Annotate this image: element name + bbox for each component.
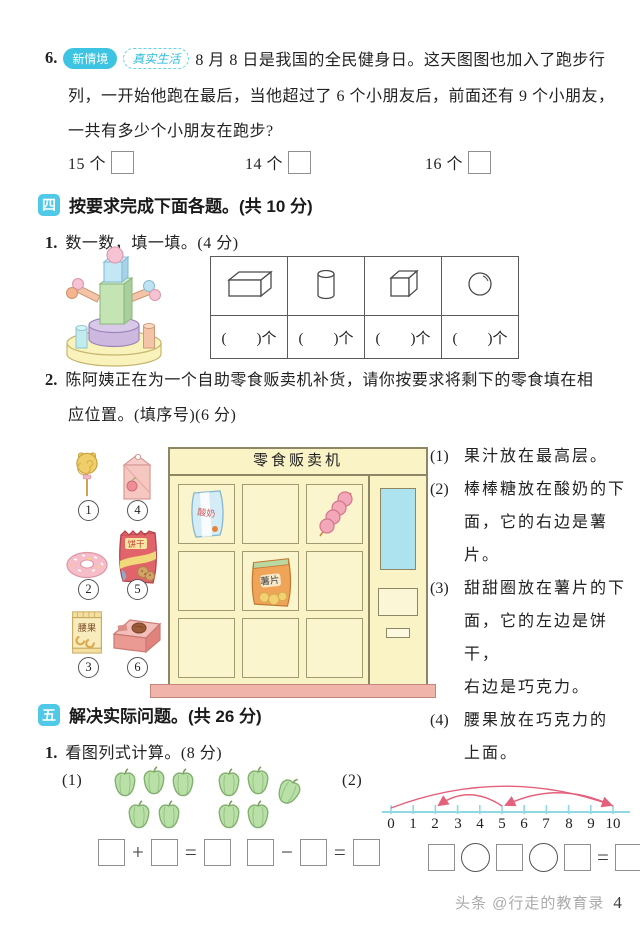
page-number: 4 <box>613 893 622 913</box>
pepper-icon <box>271 772 307 810</box>
machine-base <box>150 684 436 698</box>
machine-cell-r2c2-chips: 薯片 <box>242 551 299 611</box>
cuboid-icon <box>219 264 279 304</box>
number-line: 0 1 2 3 4 5 6 7 8 9 10 <box>380 768 632 840</box>
count-answer-cell[interactable]: ( )个 <box>365 316 442 359</box>
worksheet-page: 6. 新情境 真实生活 8 月 8 日是我国的全民健身日。这天图图也加入了跑步行… <box>0 0 640 931</box>
equation-box[interactable] <box>615 844 640 871</box>
yogurt-icon: 酸奶 <box>185 488 229 540</box>
minus-operator: − <box>281 840 293 865</box>
item-number-donut: 2 <box>78 579 99 600</box>
question-number: 6. <box>45 48 57 68</box>
machine-cell-r1c3-candied-haws <box>306 484 363 544</box>
shape-cell-cuboid <box>211 257 288 316</box>
equation-box[interactable] <box>151 839 178 866</box>
answer-checkbox[interactable] <box>111 151 134 174</box>
pepper-group-left <box>112 766 212 832</box>
machine-display <box>380 488 416 570</box>
question-number: 1. <box>45 743 57 763</box>
operator-circle[interactable] <box>461 843 490 872</box>
clue-item: (4) 腰果放在巧克力的 上面。 <box>430 704 635 770</box>
shape-toy-illustration <box>52 246 182 368</box>
clue-number: (3) <box>430 572 464 704</box>
equals-operator: = <box>185 840 197 865</box>
s5-q1-title-row: 1. 看图列式计算。(8 分) <box>45 739 222 763</box>
answer-option: 15 个 <box>68 150 134 174</box>
watermark-text: 头条 @行走的教育录 <box>455 892 604 913</box>
tick-label: 2 <box>424 816 446 833</box>
s4-q2-text-line1: 2. 陈阿姨正在为一个自助零食贩卖机补货，请你按要求将剩下的零食填在相 <box>45 366 593 390</box>
section-badge: 四 <box>38 194 60 216</box>
cashew-bag-label: 腰果 <box>78 623 96 633</box>
clue-number: (1) <box>430 440 464 473</box>
question-number: 2. <box>45 370 57 390</box>
question-6-first-line: 6. 新情境 真实生活 8 月 8 日是我国的全民健身日。这天图图也加入了跑步行 <box>45 46 605 70</box>
machine-cell-r2c3-empty[interactable] <box>306 551 363 611</box>
item-number-cookie: 5 <box>127 579 148 600</box>
pepper-icon <box>245 766 271 796</box>
chocolate-box-icon <box>108 612 166 656</box>
part-2-label: (2) <box>342 772 362 790</box>
machine-cell-r1c1-yogurt: 酸奶 <box>178 484 235 544</box>
equation-box[interactable] <box>564 844 591 871</box>
cookie-bag-icon: 饼干 <box>115 525 159 587</box>
cube-icon <box>373 264 433 304</box>
vending-machine-title: 零食贩卖机 <box>170 449 426 476</box>
chips-icon: 薯片 <box>248 554 294 608</box>
clue-line: 上面。 <box>464 737 608 770</box>
number-line-equation: = <box>428 843 640 872</box>
clue-line: 腰果放在巧克力的 <box>464 704 608 737</box>
donut-icon <box>64 547 110 581</box>
shape-cell-cube <box>365 257 442 316</box>
tick-label: 3 <box>447 816 469 833</box>
tick-label: 1 <box>402 816 424 833</box>
answer-checkbox[interactable] <box>288 151 311 174</box>
question-text-line: 陈阿姨正在为一个自助零食贩卖机补货，请你按要求将剩下的零食填在相 <box>65 366 593 390</box>
tick-label: 7 <box>535 816 557 833</box>
part-1-label: (1) <box>62 772 82 790</box>
tick-label: 0 <box>380 816 402 833</box>
equation-box[interactable] <box>496 844 523 871</box>
pepper-icon <box>141 766 167 796</box>
clue-line: 甜甜圈放在薯片的下 <box>464 572 635 605</box>
cylinder-icon <box>296 264 356 304</box>
machine-side-panel <box>368 476 426 684</box>
count-answer-cell[interactable]: ( )个 <box>288 316 365 359</box>
yogurt-label: 酸奶 <box>196 506 215 519</box>
equation-box[interactable] <box>300 839 327 866</box>
sphere-icon <box>450 264 510 304</box>
option-label: 14 个 <box>245 156 283 173</box>
juice-carton-icon <box>119 448 155 502</box>
pepper-icon <box>156 800 182 830</box>
item-number-lollipop: 1 <box>78 500 99 521</box>
machine-pickup-box <box>378 588 418 616</box>
badge-new-context: 新情境 <box>63 48 117 69</box>
count-answer-cell[interactable]: ( )个 <box>442 316 519 359</box>
cashew-bag-icon: 腰果 <box>68 608 106 655</box>
tick-label: 10 <box>602 816 624 833</box>
question-title: 看图列式计算。(8 分) <box>65 739 222 763</box>
machine-cell-r3c2-empty[interactable] <box>242 618 299 678</box>
badge-real-life: 真实生活 <box>123 48 189 69</box>
pepper-icon <box>216 800 242 830</box>
clue-line: 面，它的左边是饼干， <box>464 605 635 671</box>
question-text-line: 8 月 8 日是我国的全民健身日。这天图图也加入了跑步行 <box>195 46 605 70</box>
clue-item: (3) 甜甜圈放在薯片的下 面，它的左边是饼干， 右边是巧克力。 <box>430 572 635 704</box>
clue-item: (2) 棒棒糖放在酸奶的下 面，它的右边是薯片。 <box>430 473 635 572</box>
tick-label: 9 <box>580 816 602 833</box>
answer-option: 16 个 <box>425 150 491 174</box>
count-answer-cell[interactable]: ( )个 <box>211 316 288 359</box>
operator-circle[interactable] <box>529 843 558 872</box>
equation-box[interactable] <box>428 844 455 871</box>
equation-box[interactable] <box>98 839 125 866</box>
vending-machine: 零食贩卖机 酸奶 <box>168 447 428 688</box>
answer-option: 14 个 <box>245 150 311 174</box>
pepper-icon <box>126 800 152 830</box>
machine-grid: 酸奶 <box>170 476 368 684</box>
cookie-bag-label: 饼干 <box>127 539 145 549</box>
arc-5-to-2 <box>439 795 502 806</box>
machine-cell-r1c2-empty[interactable] <box>242 484 299 544</box>
pepper-icon <box>216 768 242 798</box>
equation-box[interactable] <box>353 839 380 866</box>
clue-line: 棒棒糖放在酸奶的下 <box>464 473 635 506</box>
pepper-icon <box>170 768 196 798</box>
machine-cell-r2c1-empty[interactable] <box>178 551 235 611</box>
clue-number: (4) <box>430 704 464 770</box>
clue-number: (2) <box>430 473 464 572</box>
shapes-count-table: ( )个 ( )个 ( )个 ( )个 <box>210 256 519 359</box>
tick-label: 6 <box>513 816 535 833</box>
pepper-icon <box>245 800 271 830</box>
option-label: 16 个 <box>425 156 463 173</box>
option-label: 15 个 <box>68 156 106 173</box>
answer-checkbox[interactable] <box>468 151 491 174</box>
item-number-chocolate: 6 <box>127 657 148 678</box>
clue-line: 右边是巧克力。 <box>464 671 635 704</box>
number-line-figure <box>380 768 632 818</box>
shape-cell-sphere <box>442 257 519 316</box>
machine-cell-r3c3-empty[interactable] <box>306 618 363 678</box>
s4-q2-text-line2: 应位置。(填序号)(6 分) <box>68 401 236 425</box>
section-badge: 五 <box>38 704 60 726</box>
chips-label: 薯片 <box>259 574 279 588</box>
tick-label: 8 <box>558 816 580 833</box>
clue-item: (1) 果汁放在最高层。 <box>430 440 635 473</box>
section-5-header: 五 解决实际问题。(共 26 分) <box>38 702 262 727</box>
clue-line: 面，它的右边是薯片。 <box>464 506 635 572</box>
item-number-cashew: 3 <box>78 657 99 678</box>
addition-equation: + = <box>98 839 231 866</box>
arc-10-to-5 <box>506 793 613 806</box>
pepper-icon <box>112 768 138 798</box>
pepper-group-right <box>216 766 316 832</box>
equation-box[interactable] <box>247 839 274 866</box>
tick-label: 5 <box>491 816 513 833</box>
machine-cell-r3c1-empty[interactable] <box>178 618 235 678</box>
clue-line: 果汁放在最高层。 <box>464 440 608 473</box>
section-title: 按要求完成下面各题。(共 10 分) <box>69 192 313 217</box>
shape-cell-cylinder <box>288 257 365 316</box>
candied-haws-icon <box>311 487 359 541</box>
section-title: 解决实际问题。(共 26 分) <box>69 702 262 727</box>
subtraction-equation: − = <box>247 839 380 866</box>
equals-operator: = <box>334 840 346 865</box>
question-text-line: 一共有多少个小朋友在跑步? <box>68 117 274 141</box>
question-text-line: 列，一开始他跑在最后，当他超过了 6 个小朋友后，前面还有 9 个小朋友， <box>68 82 615 106</box>
equation-box[interactable] <box>204 839 231 866</box>
section-4-header: 四 按要求完成下面各题。(共 10 分) <box>38 192 313 217</box>
item-number-juice: 4 <box>127 500 148 521</box>
machine-coin-slot <box>386 628 410 638</box>
equals-operator: = <box>597 845 609 870</box>
tick-label: 4 <box>469 816 491 833</box>
plus-operator: + <box>132 840 144 865</box>
clue-list: (1) 果汁放在最高层。 (2) 棒棒糖放在酸奶的下 面，它的右边是薯片。 (3… <box>430 440 635 770</box>
lollipop-icon <box>72 450 102 500</box>
page-footer: 头条 @行走的教育录 4 <box>455 892 622 913</box>
